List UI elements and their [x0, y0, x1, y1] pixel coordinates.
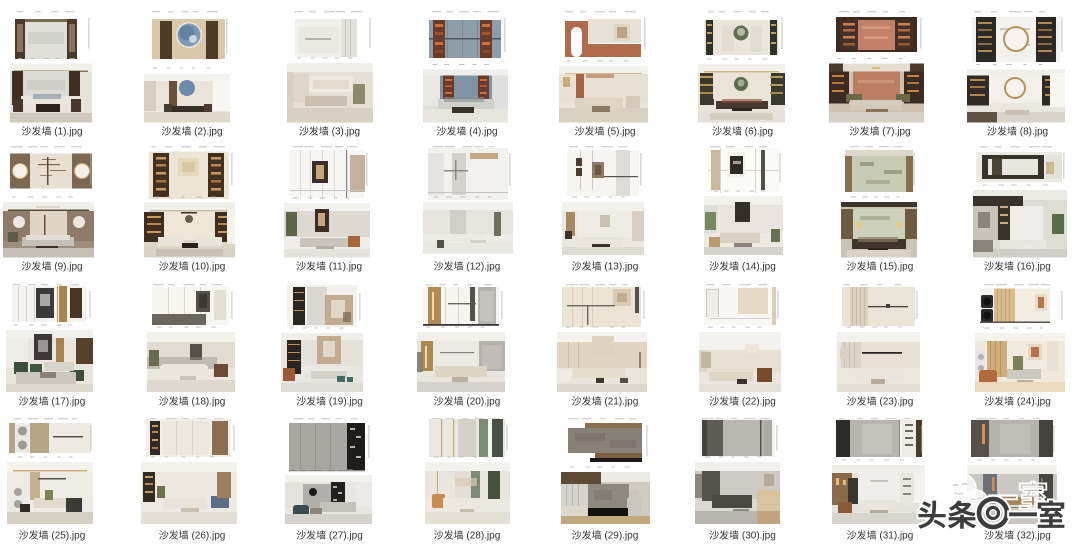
svg-text:(26).jpg: (26).jpg [189, 531, 226, 542]
svg-text:(3).jpg: (3).jpg [329, 127, 360, 138]
svg-text:(30).jpg: (30).jpg [739, 531, 776, 542]
svg-text:(5).jpg: (5).jpg [605, 127, 636, 138]
svg-text:(6).jpg: (6).jpg [742, 127, 773, 138]
svg-text:(15).jpg: (15).jpg [877, 262, 914, 273]
svg-text:(16).jpg: (16).jpg [1014, 262, 1051, 273]
svg-text:(28).jpg: (28).jpg [464, 531, 501, 542]
svg-text:(8).jpg: (8).jpg [1017, 127, 1048, 138]
svg-text:(22).jpg: (22).jpg [739, 397, 776, 408]
svg-text:(2).jpg: (2).jpg [191, 127, 222, 138]
svg-text:(1).jpg: (1).jpg [52, 127, 83, 138]
svg-text:(21).jpg: (21).jpg [602, 397, 639, 408]
svg-text:(24).jpg: (24).jpg [1014, 397, 1051, 408]
svg-text:(20).jpg: (20).jpg [464, 397, 501, 408]
svg-text:(25).jpg: (25).jpg [49, 531, 86, 542]
svg-text:(31).jpg: (31).jpg [877, 531, 914, 542]
svg-text:(10).jpg: (10).jpg [189, 262, 226, 273]
svg-text:(11).jpg: (11).jpg [326, 262, 362, 273]
svg-text:(18).jpg: (18).jpg [189, 397, 226, 408]
svg-text:(12).jpg: (12).jpg [464, 262, 501, 273]
svg-text:(9).jpg: (9).jpg [52, 262, 83, 273]
svg-text:(14).jpg: (14).jpg [739, 262, 776, 273]
svg-text:(32).jpg: (32).jpg [1014, 531, 1051, 542]
svg-text:(17).jpg: (17).jpg [49, 397, 86, 408]
svg-text:(27).jpg: (27).jpg [326, 531, 363, 542]
svg-text:(29).jpg: (29).jpg [602, 531, 639, 542]
svg-text:(13).jpg: (13).jpg [602, 262, 639, 273]
svg-text:(19).jpg: (19).jpg [326, 397, 363, 408]
svg-text:(4).jpg: (4).jpg [466, 127, 497, 138]
svg-text:(23).jpg: (23).jpg [877, 397, 914, 408]
svg-text:(7).jpg: (7).jpg [880, 127, 911, 138]
